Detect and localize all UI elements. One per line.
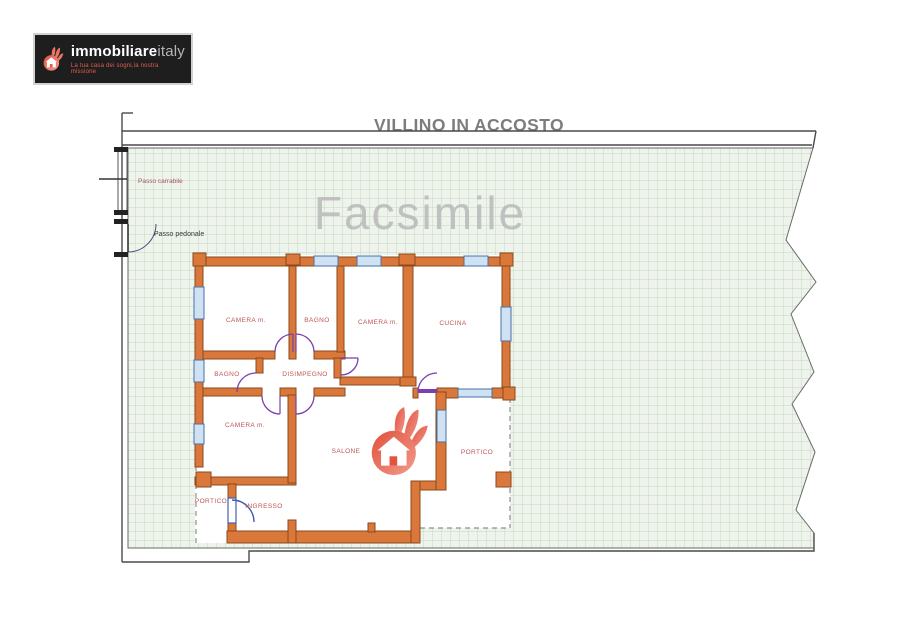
room-label-camera3: CAMERA m.	[225, 422, 265, 429]
facsimile-watermark: Facsimile	[314, 187, 526, 239]
driveway-gate-label: Passo carrabile	[138, 178, 183, 185]
corner-post	[399, 254, 415, 265]
gate-post	[114, 210, 128, 215]
room-label-disimpegno: DISIMPEGNO	[282, 371, 328, 378]
room-label-ingresso: INGRESSO	[245, 503, 283, 510]
room-label-portico-right: PORTICO	[461, 449, 493, 456]
page: immobiliareitaly La tua casa dei sogni,l…	[0, 0, 917, 628]
room-label-portico-left: PORTICO	[195, 498, 227, 505]
corner-post	[193, 253, 206, 266]
door-leaf	[418, 389, 437, 393]
wall-stub	[368, 523, 375, 532]
house-footprint	[195, 255, 510, 543]
corner-post	[503, 387, 515, 400]
floor-plan: Facsimile Passo carrabile Passo pedonale	[0, 0, 917, 628]
gate-post	[114, 252, 128, 257]
gate-post	[114, 147, 128, 152]
corner-post	[500, 253, 513, 266]
portico-pillar	[496, 472, 511, 487]
portico-pillar	[196, 472, 211, 487]
room-label-salone: SALONE	[332, 448, 361, 455]
room-label-bagno1: BAGNO	[304, 317, 329, 324]
pedestrian-gate-label: Passo pedonale	[154, 231, 204, 238]
room-label-camera2: CAMERA m.	[358, 319, 398, 326]
room-label-cucina: CUCINA	[439, 320, 467, 327]
room-label-bagno2: BAGNO	[214, 371, 239, 378]
corner-post	[286, 254, 300, 265]
room-label-camera1: CAMERA m.	[226, 317, 266, 324]
gate-post	[114, 219, 128, 224]
